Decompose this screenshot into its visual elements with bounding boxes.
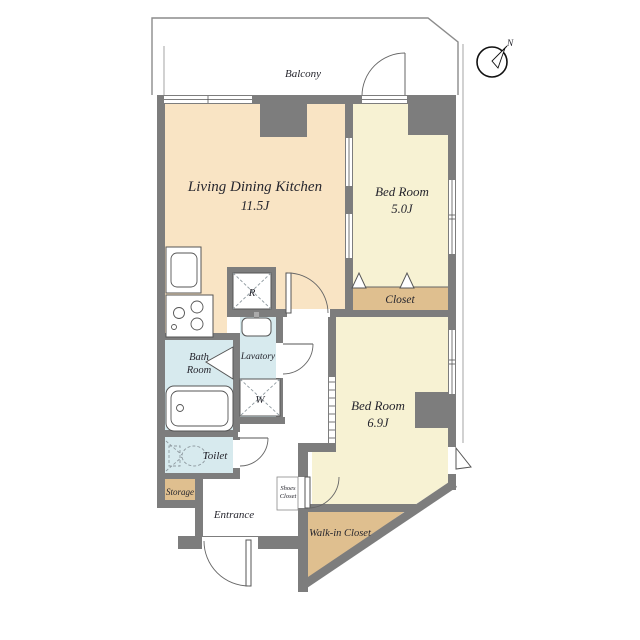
compass-north-label: N — [506, 39, 514, 49]
floor-plan: Balcony Living Dining Kitchen 11.5J Bed … — [0, 0, 640, 640]
bedroom6-door — [305, 477, 310, 508]
bath-room-label-2: Room — [186, 365, 212, 376]
compass: N — [477, 39, 514, 77]
ldk-size: 11.5J — [241, 198, 271, 213]
ldk-label: Living Dining Kitchen — [187, 179, 322, 195]
walk-in-closet-label: Walk-in Closet — [309, 528, 372, 539]
bathtub — [166, 386, 233, 431]
stove — [166, 295, 213, 337]
washer-label: W — [255, 394, 265, 406]
bedroom5-label: Bed Room — [375, 184, 429, 199]
balcony-label: Balcony — [285, 68, 321, 80]
bedroom6-size: 6.9J — [367, 416, 390, 430]
ldk-hall-door — [286, 273, 291, 313]
toilet-label: Toilet — [203, 450, 229, 462]
bedroom6-label: Bed Room — [351, 398, 405, 413]
shoes-closet-label-1: Shoes — [280, 485, 296, 492]
bedroom6-outside-door — [456, 448, 471, 469]
closet-label: Closet — [385, 294, 415, 306]
shoes-closet-label-2: Closet — [280, 493, 297, 500]
entrance-label: Entrance — [213, 509, 254, 521]
bath-room-label-1: Bath — [189, 352, 209, 363]
lavatory-label: Lavatory — [240, 352, 276, 362]
floor-plan-svg: Balcony Living Dining Kitchen 11.5J Bed … — [0, 0, 640, 640]
storage-label: Storage — [166, 487, 194, 497]
bedroom5-size: 5.0J — [391, 202, 414, 216]
balcony-door — [362, 53, 405, 96]
refrigerator-label: R — [248, 287, 256, 299]
entrance-door — [246, 540, 251, 586]
